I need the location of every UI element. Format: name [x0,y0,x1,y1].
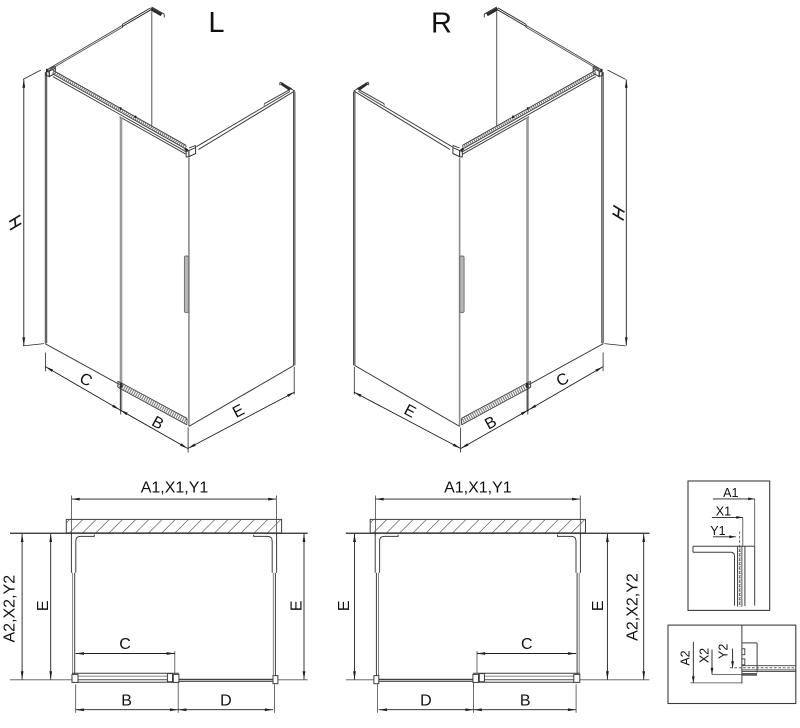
svg-text:X1: X1 [716,504,731,518]
svg-text:E: E [336,600,353,611]
svg-text:B: B [121,693,132,710]
svg-text:E: E [35,600,52,611]
svg-text:A1,X1,Y1: A1,X1,Y1 [141,480,209,497]
svg-text:R: R [431,8,452,40]
svg-text:C: C [119,636,131,653]
svg-text:A1,X1,Y1: A1,X1,Y1 [444,480,512,497]
svg-text:L: L [208,7,224,39]
svg-text:E: E [289,600,306,611]
svg-text:A2,X2,Y2: A2,X2,Y2 [624,573,641,641]
svg-text:A2,X2,Y2: A2,X2,Y2 [1,575,18,643]
svg-text:A1: A1 [723,486,738,500]
svg-text:X2: X2 [698,648,712,663]
svg-text:A2: A2 [679,650,693,665]
svg-text:Y1: Y1 [710,524,725,538]
svg-text:B: B [520,693,531,710]
svg-text:C: C [521,636,533,653]
svg-text:D: D [420,693,432,710]
svg-text:E: E [590,600,607,611]
svg-text:D: D [220,693,232,710]
svg-text:Y2: Y2 [717,644,731,659]
